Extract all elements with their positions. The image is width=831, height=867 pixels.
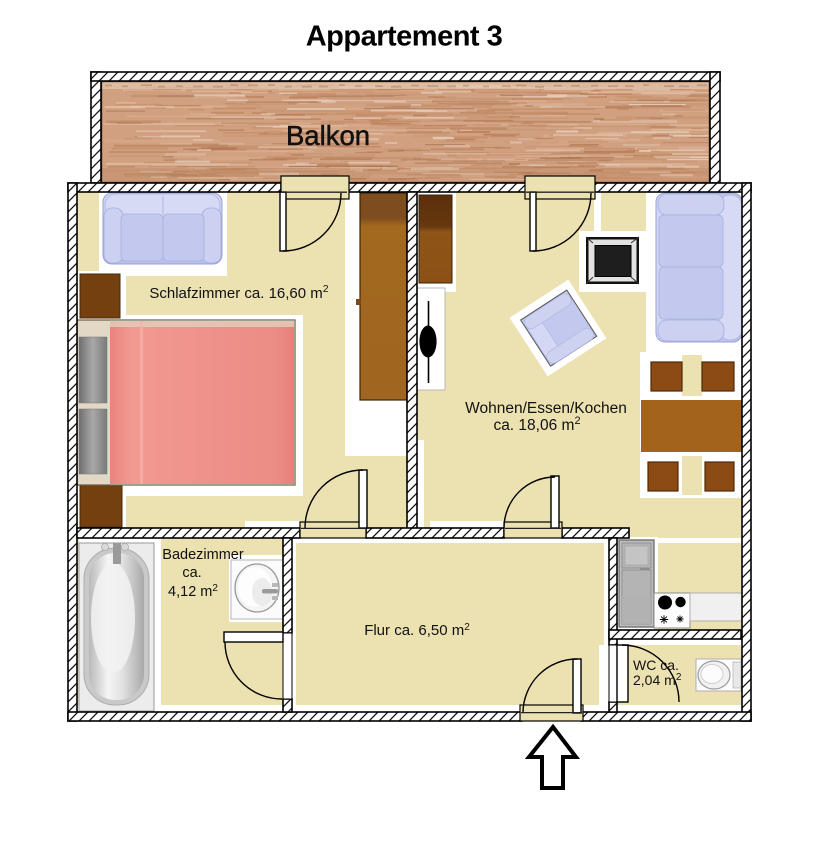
svg-text:2,04 m2: 2,04 m2 xyxy=(633,672,682,688)
svg-text:Appartement 3: Appartement 3 xyxy=(306,21,503,53)
svg-text:WC ca.: WC ca. xyxy=(633,657,679,673)
svg-text:Balkon: Balkon xyxy=(286,120,370,151)
svg-text:Flur ca. 6,50 m2: Flur ca. 6,50 m2 xyxy=(364,622,470,639)
svg-text:Badezimmer: Badezimmer xyxy=(162,547,244,563)
svg-text:Wohnen/Essen/Kochen: Wohnen/Essen/Kochen xyxy=(465,400,627,417)
svg-text:4,12 m2: 4,12 m2 xyxy=(168,583,218,600)
svg-text:ca. 18,06 m2: ca. 18,06 m2 xyxy=(493,415,580,434)
svg-text:ca.: ca. xyxy=(182,565,201,581)
svg-text:Schlafzimmer ca. 16,60 m2: Schlafzimmer ca. 16,60 m2 xyxy=(149,283,328,302)
